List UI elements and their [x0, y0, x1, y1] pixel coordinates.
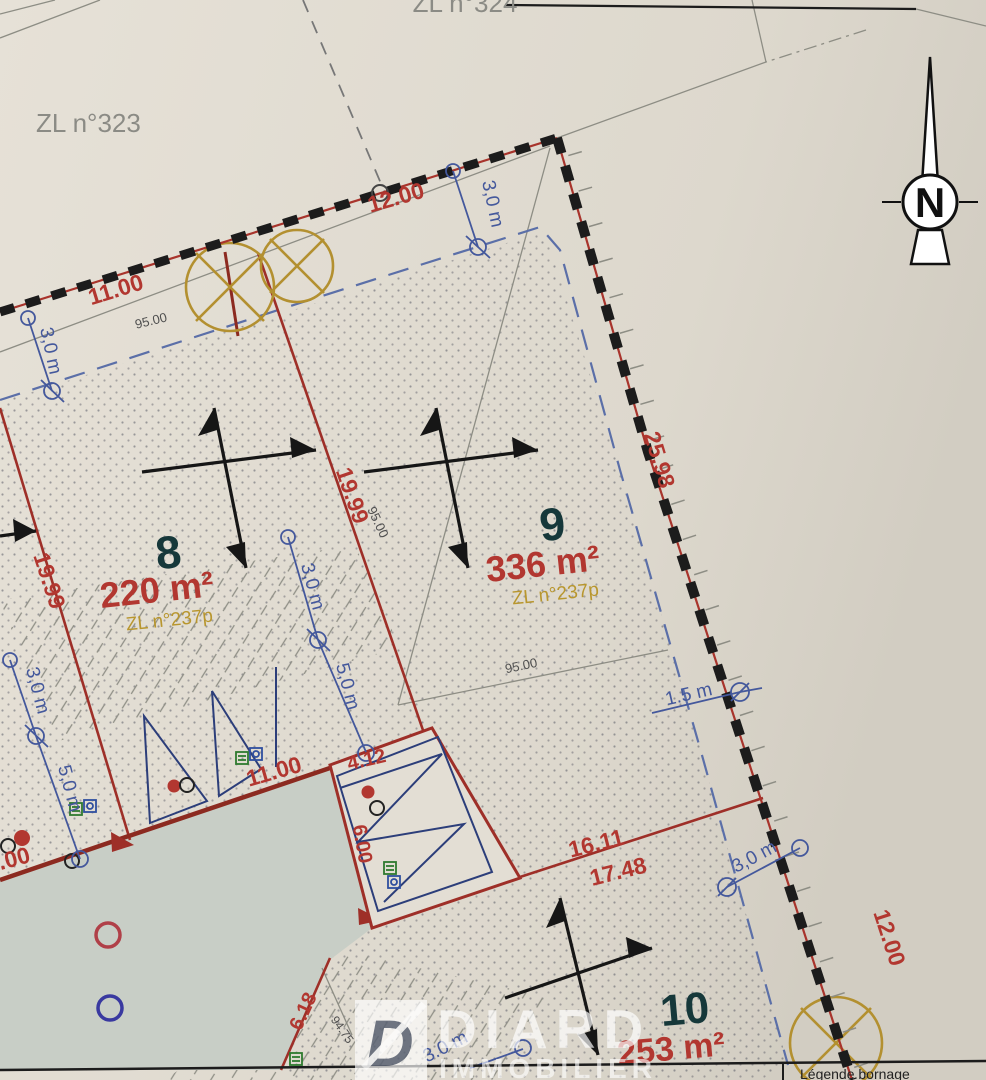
- cadastral-plan-photo: 12.00 11.00 19.99 19.99 25.98 16.11 17.4…: [0, 0, 986, 1080]
- watermark-line1: DIARD: [437, 998, 651, 1060]
- neighbor-parcel-label-left: ZL n°323: [36, 108, 141, 138]
- watermark-line2: IMMOBILIER: [439, 1053, 657, 1080]
- site-plan-svg: 12.00 11.00 19.99 19.99 25.98 16.11 17.4…: [0, 0, 986, 1080]
- north-letter: N: [915, 179, 945, 226]
- neighbor-parcel-label-top: ZL n°324: [413, 0, 518, 18]
- survey-point-red-dot: [362, 786, 375, 799]
- legend-title: Légende bornage: [800, 1066, 910, 1080]
- watermark-diard: D DIARD IMMOBILIER: [355, 998, 657, 1080]
